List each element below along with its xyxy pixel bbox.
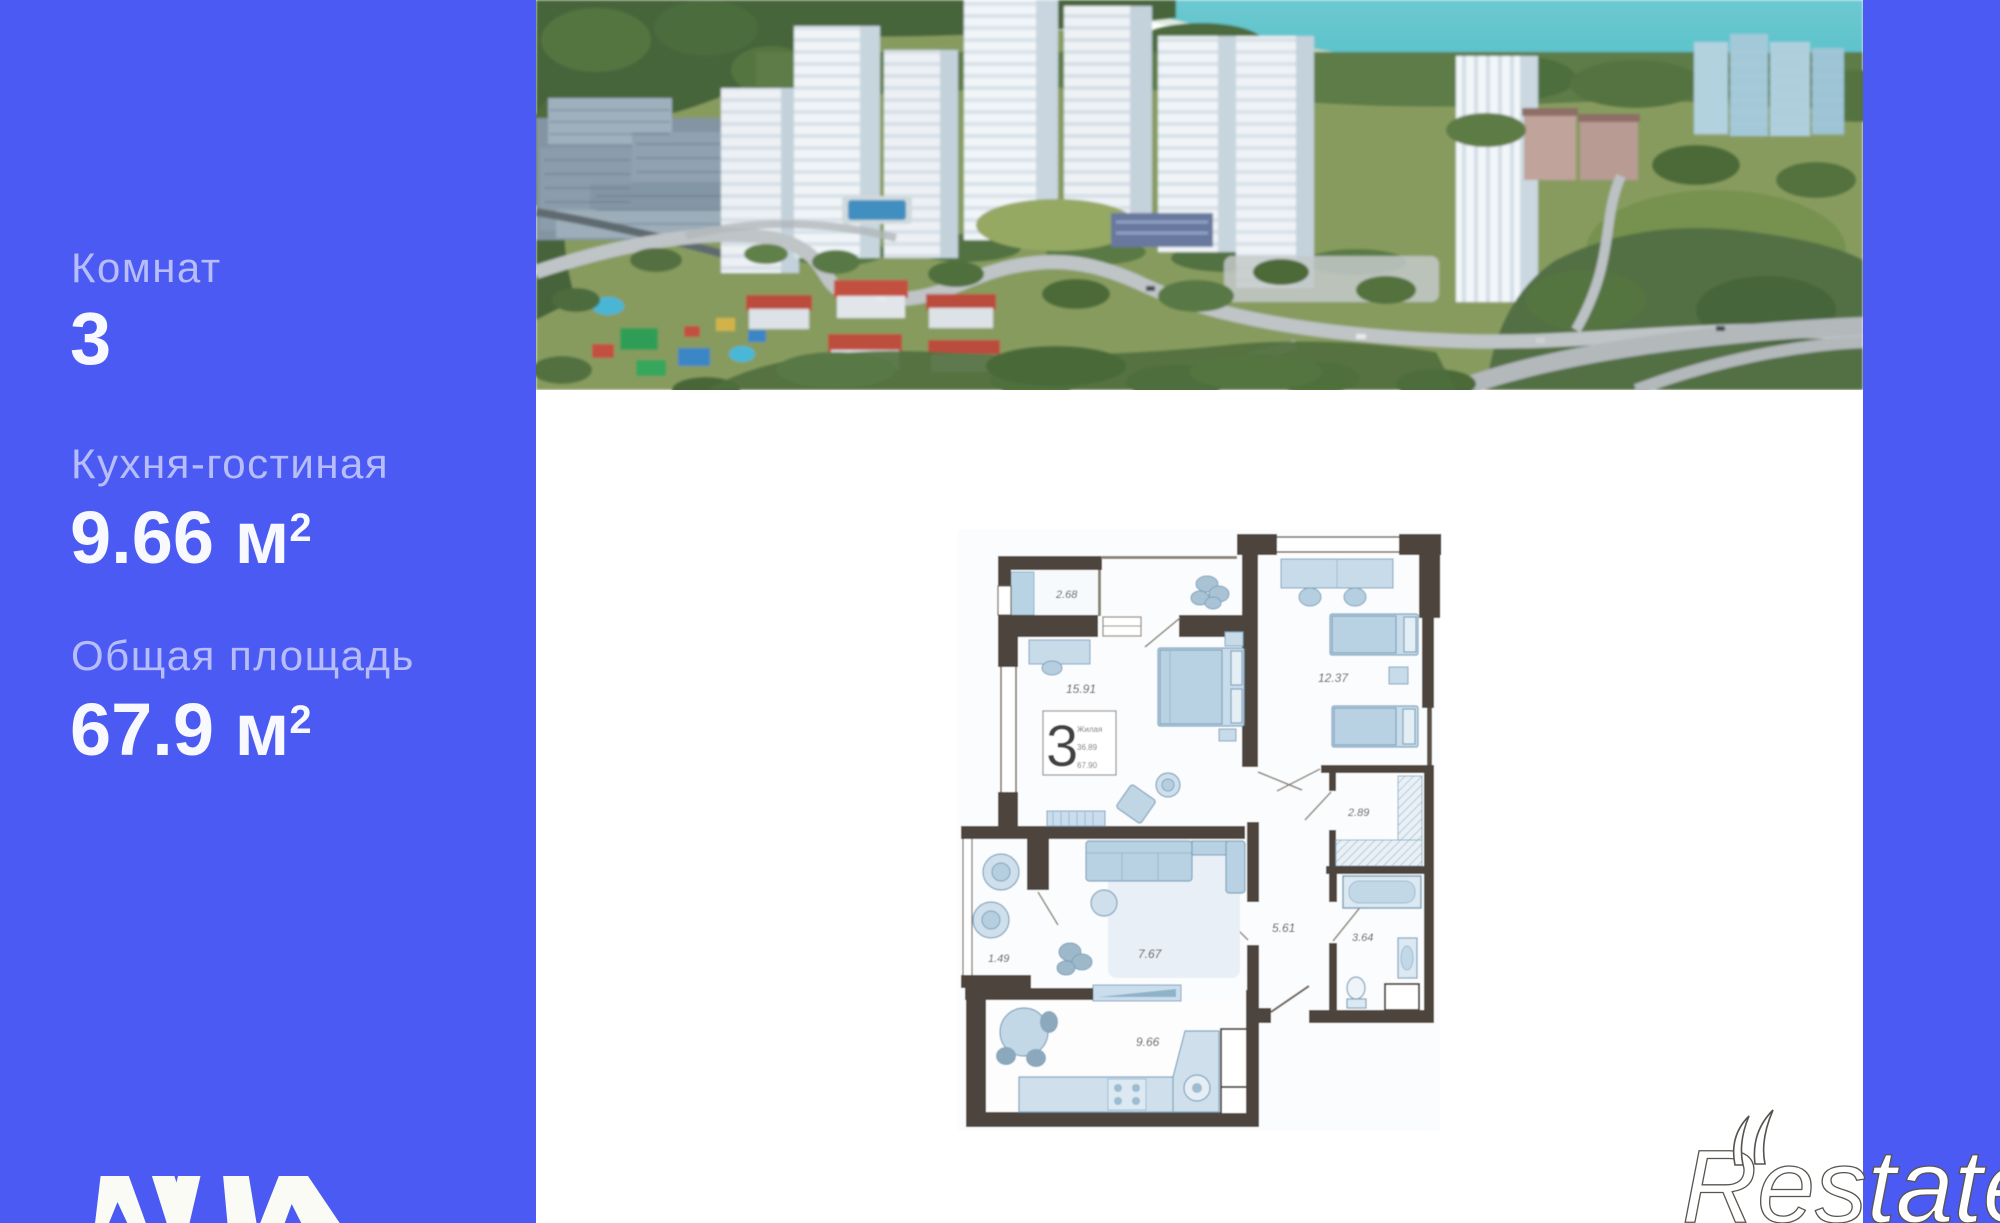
- svg-text:12.37: 12.37: [1318, 671, 1349, 685]
- svg-text:3: 3: [1046, 714, 1078, 779]
- svg-text:Жилая: Жилая: [1077, 725, 1102, 734]
- svg-text:7.67: 7.67: [1138, 947, 1163, 961]
- svg-text:2.68: 2.68: [1055, 589, 1078, 601]
- svg-text:9.66: 9.66: [1136, 1035, 1160, 1049]
- svg-text:36.89: 36.89: [1077, 743, 1098, 752]
- svg-text:5.61: 5.61: [1272, 921, 1295, 935]
- svg-text:1.49: 1.49: [988, 953, 1009, 965]
- svg-text:15.91: 15.91: [1066, 682, 1096, 696]
- svg-text:3.64: 3.64: [1352, 932, 1373, 944]
- svg-text:2.89: 2.89: [1347, 807, 1369, 819]
- svg-text:67.90: 67.90: [1077, 761, 1098, 770]
